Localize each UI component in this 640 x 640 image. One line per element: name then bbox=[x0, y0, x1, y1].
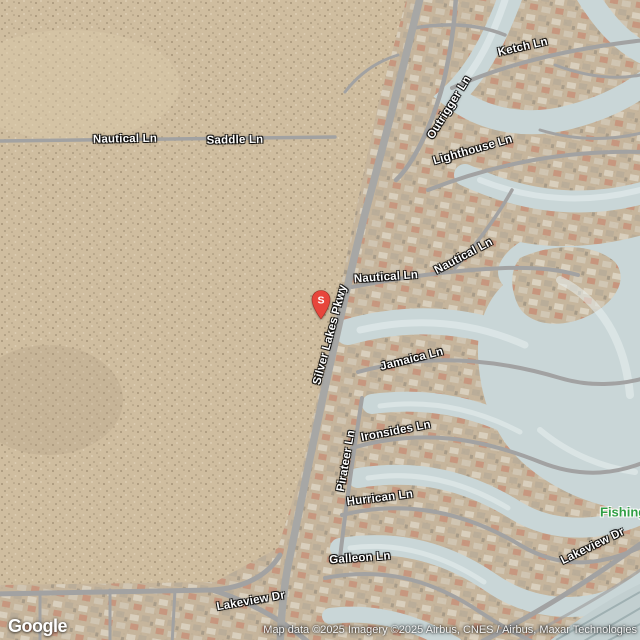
road-label-saddle-ln: Saddle Ln bbox=[207, 135, 264, 147]
poi-label-fishing: Fishing bbox=[600, 506, 640, 519]
google-logo[interactable]: Google bbox=[8, 617, 67, 635]
pin-letter: S bbox=[317, 295, 324, 307]
map-attribution[interactable]: Map data ©2025 Imagery ©2025 Airbus, CNE… bbox=[263, 625, 637, 636]
map-marker-pin[interactable]: S bbox=[309, 288, 333, 320]
road-label-nautical-ln-west: Nautical Ln bbox=[93, 134, 157, 147]
satellite-imagery bbox=[0, 0, 640, 640]
satellite-map-canvas[interactable]: Nautical Ln Saddle Ln Ketch Ln Outrigger… bbox=[0, 0, 640, 640]
